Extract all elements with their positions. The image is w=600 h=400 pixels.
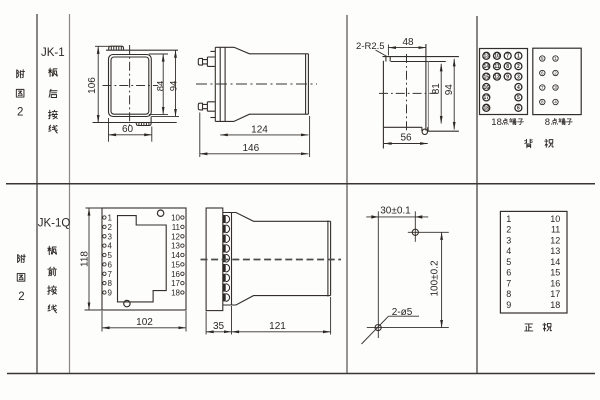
svg-text:3: 3 — [554, 85, 557, 90]
svg-text:6: 6 — [108, 260, 113, 269]
svg-text:15: 15 — [171, 260, 180, 269]
svg-text:30±0.1: 30±0.1 — [380, 206, 411, 217]
svg-text:8: 8 — [545, 117, 550, 128]
svg-text:11: 11 — [494, 64, 500, 70]
svg-text:18: 18 — [491, 117, 502, 128]
svg-text:15: 15 — [550, 268, 560, 278]
svg-text:5: 5 — [517, 95, 520, 101]
svg-text:15: 15 — [484, 74, 490, 80]
svg-text:13: 13 — [171, 242, 180, 251]
svg-text:6: 6 — [517, 106, 520, 112]
svg-text:4: 4 — [554, 100, 557, 105]
svg-text:10: 10 — [550, 214, 560, 224]
svg-text:8: 8 — [506, 289, 511, 299]
svg-text:5: 5 — [506, 257, 511, 267]
svg-text:8: 8 — [108, 279, 113, 288]
svg-text:7: 7 — [506, 278, 511, 288]
svg-text:81: 81 — [431, 83, 442, 95]
svg-text:2: 2 — [108, 223, 113, 232]
svg-text:3: 3 — [108, 232, 113, 241]
svg-text:18: 18 — [484, 106, 490, 112]
svg-text:48: 48 — [402, 37, 414, 48]
svg-text:5: 5 — [108, 251, 113, 260]
svg-text:2-R2.5: 2-R2.5 — [356, 41, 385, 52]
svg-text:7: 7 — [108, 270, 113, 279]
svg-text:16: 16 — [550, 278, 560, 288]
svg-text:14: 14 — [484, 64, 490, 70]
svg-text:14: 14 — [550, 257, 560, 267]
svg-text:146: 146 — [242, 143, 259, 154]
svg-text:4: 4 — [506, 246, 511, 256]
svg-text:18: 18 — [550, 300, 560, 310]
svg-text:16: 16 — [484, 85, 490, 91]
svg-text:8: 8 — [506, 64, 509, 70]
svg-text:11: 11 — [172, 223, 181, 232]
svg-text:13: 13 — [550, 246, 560, 256]
svg-text:16: 16 — [171, 270, 180, 279]
svg-text:17: 17 — [484, 95, 490, 101]
svg-text:2: 2 — [517, 64, 520, 70]
svg-text:9: 9 — [108, 289, 113, 298]
svg-text:121: 121 — [269, 321, 286, 332]
svg-text:94: 94 — [168, 81, 179, 92]
svg-text:10: 10 — [494, 54, 500, 60]
svg-text:1: 1 — [108, 214, 113, 223]
svg-text:7: 7 — [541, 85, 544, 90]
svg-text:10: 10 — [171, 214, 180, 223]
svg-text:35: 35 — [213, 321, 225, 332]
svg-text:2: 2 — [17, 107, 23, 119]
svg-text:2: 2 — [506, 225, 511, 235]
svg-text:60: 60 — [122, 124, 134, 135]
svg-text:118: 118 — [80, 251, 91, 267]
svg-text:1: 1 — [506, 214, 511, 224]
svg-text:102: 102 — [136, 317, 153, 328]
svg-text:9: 9 — [506, 300, 511, 310]
svg-text:5: 5 — [541, 56, 544, 61]
svg-text:1: 1 — [517, 54, 520, 60]
svg-text:6: 6 — [541, 71, 544, 76]
svg-text:4: 4 — [517, 85, 520, 91]
svg-text:JK-1: JK-1 — [41, 47, 65, 59]
svg-text:14: 14 — [171, 251, 180, 260]
svg-text:9: 9 — [506, 74, 509, 80]
svg-text:124: 124 — [251, 124, 268, 135]
svg-text:12: 12 — [550, 235, 560, 245]
svg-text:12: 12 — [171, 232, 180, 241]
svg-text:2: 2 — [554, 71, 557, 76]
svg-text:12: 12 — [494, 74, 500, 80]
svg-text:7: 7 — [506, 54, 509, 60]
svg-text:100±0.2: 100±0.2 — [429, 260, 440, 297]
svg-text:JK-1Q: JK-1Q — [38, 218, 71, 230]
svg-text:18: 18 — [171, 289, 180, 298]
svg-text:11: 11 — [551, 225, 560, 235]
svg-text:84: 84 — [155, 81, 166, 92]
svg-text:6: 6 — [506, 268, 511, 278]
svg-text:17: 17 — [550, 289, 560, 299]
svg-text:8: 8 — [541, 100, 544, 105]
svg-text:106: 106 — [87, 77, 98, 94]
svg-text:1: 1 — [554, 56, 557, 61]
svg-text:94: 94 — [444, 84, 455, 96]
svg-text:3: 3 — [506, 235, 511, 245]
svg-text:2: 2 — [18, 291, 24, 303]
svg-text:3: 3 — [517, 74, 520, 80]
svg-text:17: 17 — [171, 279, 180, 288]
svg-text:13: 13 — [484, 54, 490, 60]
svg-text:56: 56 — [400, 133, 412, 144]
svg-text:4: 4 — [108, 242, 113, 251]
